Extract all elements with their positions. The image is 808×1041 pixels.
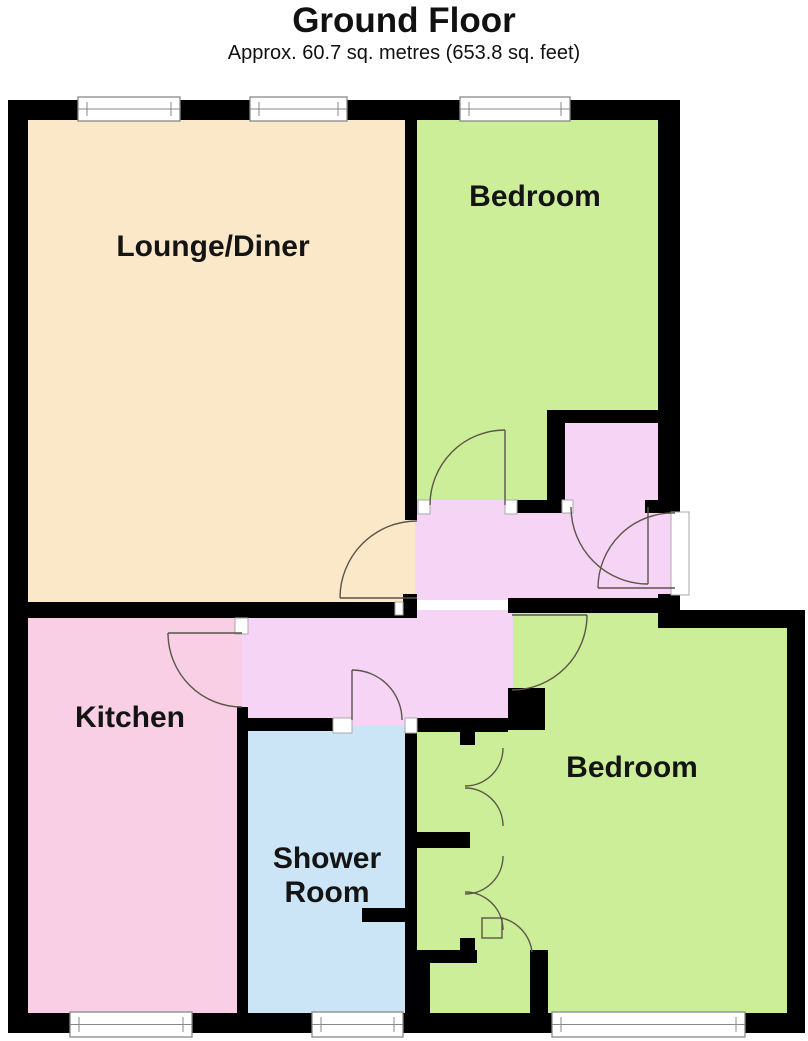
label-kitchen: Kitchen bbox=[75, 701, 185, 734]
wall-hall-bottom bbox=[415, 718, 508, 732]
window bbox=[312, 1012, 403, 1037]
wall-right-upper bbox=[658, 100, 680, 513]
door-post bbox=[235, 618, 248, 634]
wall-closet-top bbox=[547, 410, 678, 423]
floor-plan-page: Ground Floor Approx. 60.7 sq. metres (65… bbox=[0, 0, 808, 1041]
label-bedroom-bottom: Bedroom bbox=[566, 751, 698, 784]
window bbox=[552, 1012, 745, 1037]
wall-swcloset-left bbox=[417, 950, 430, 1033]
front-doorway bbox=[671, 512, 689, 595]
label-shower-line2: Room bbox=[285, 876, 370, 909]
room-lounge-diner bbox=[18, 110, 417, 602]
wall-se-top bbox=[677, 610, 805, 628]
wall-left-exterior bbox=[8, 100, 28, 1033]
label-shower-line1: Shower bbox=[273, 842, 382, 875]
wall-shower-right bbox=[405, 731, 417, 1013]
door-post bbox=[333, 718, 352, 733]
room-kitchen bbox=[18, 610, 242, 1023]
label-bedroom-top: Bedroom bbox=[469, 180, 601, 213]
wall-right-lower bbox=[787, 610, 805, 1033]
wall-bedroom2-top bbox=[508, 598, 658, 613]
wall-kitchen-right bbox=[237, 707, 248, 1013]
wall-cupboard-cross bbox=[415, 832, 470, 848]
door-post bbox=[505, 500, 517, 514]
door-post bbox=[405, 718, 417, 733]
wall-shower-top bbox=[242, 718, 333, 731]
window bbox=[70, 1012, 192, 1037]
wall-lounge-right bbox=[405, 120, 417, 520]
wall-closet-left bbox=[547, 410, 565, 500]
wall-bedroom1-bottom bbox=[517, 500, 548, 513]
wall-lounge-kitchen bbox=[8, 602, 417, 618]
floor-plan: Lounge/Diner Bedroom Kitchen Shower Room… bbox=[0, 0, 808, 1041]
wall-right-doorjamb bbox=[658, 594, 680, 628]
window bbox=[460, 97, 570, 121]
wall-swcloset-right bbox=[530, 950, 548, 1033]
window bbox=[250, 97, 347, 121]
window bbox=[78, 97, 180, 121]
label-lounge-diner: Lounge/Diner bbox=[116, 230, 310, 263]
wall-closet-bottom-right bbox=[645, 500, 678, 513]
wall-cupboard-stub-a bbox=[460, 730, 475, 745]
wall-bedroom2-doorblock bbox=[508, 688, 545, 730]
hall-closet bbox=[555, 415, 666, 507]
door-post bbox=[418, 500, 430, 514]
hall-corridor bbox=[242, 610, 513, 726]
door-post bbox=[395, 602, 403, 615]
hall-entry bbox=[415, 500, 673, 600]
wall-shower-stub bbox=[362, 908, 405, 922]
